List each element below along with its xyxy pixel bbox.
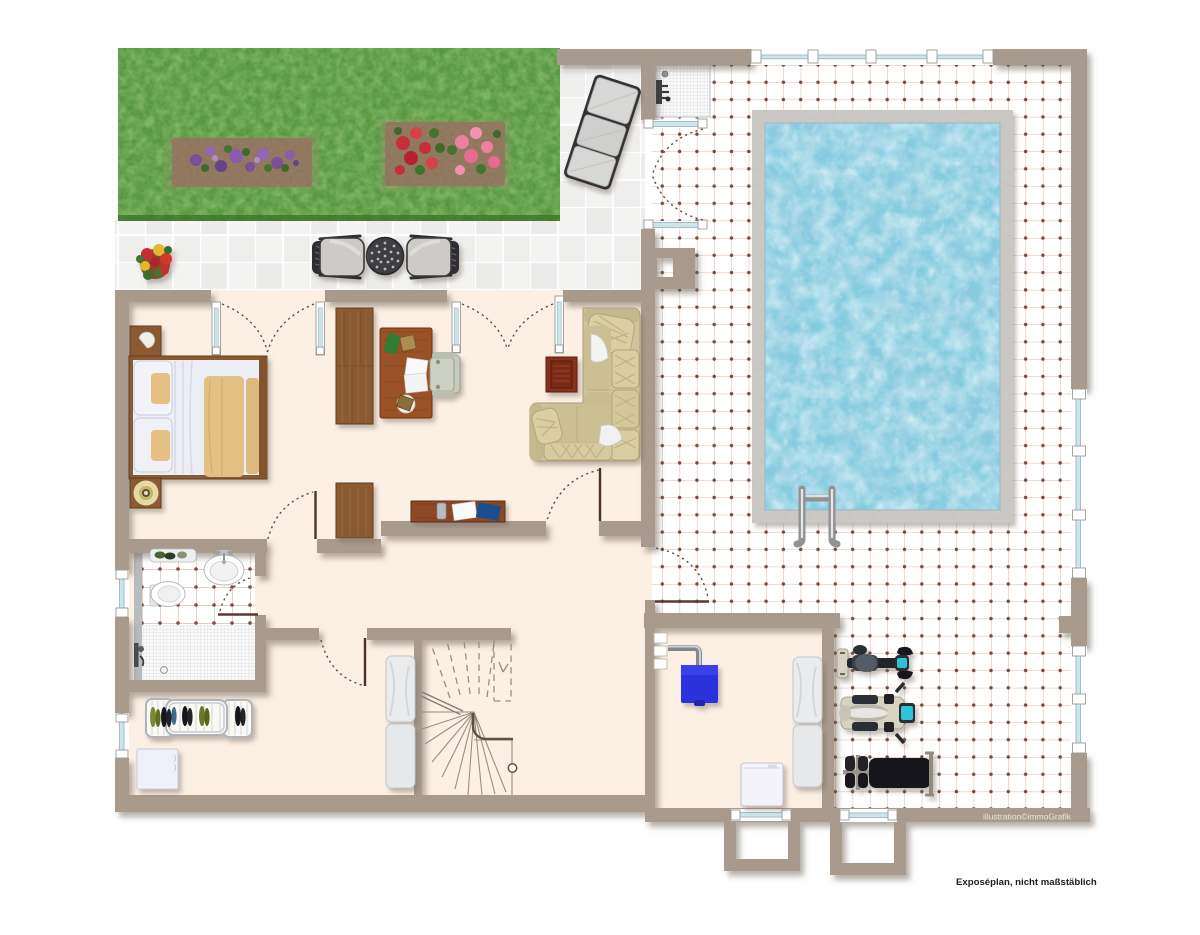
svg-text:Exposéplan, nicht maßstäblich: Exposéplan, nicht maßstäblich bbox=[956, 877, 1097, 888]
svg-text:illustration©immoGrafik: illustration©immoGrafik bbox=[983, 812, 1072, 822]
